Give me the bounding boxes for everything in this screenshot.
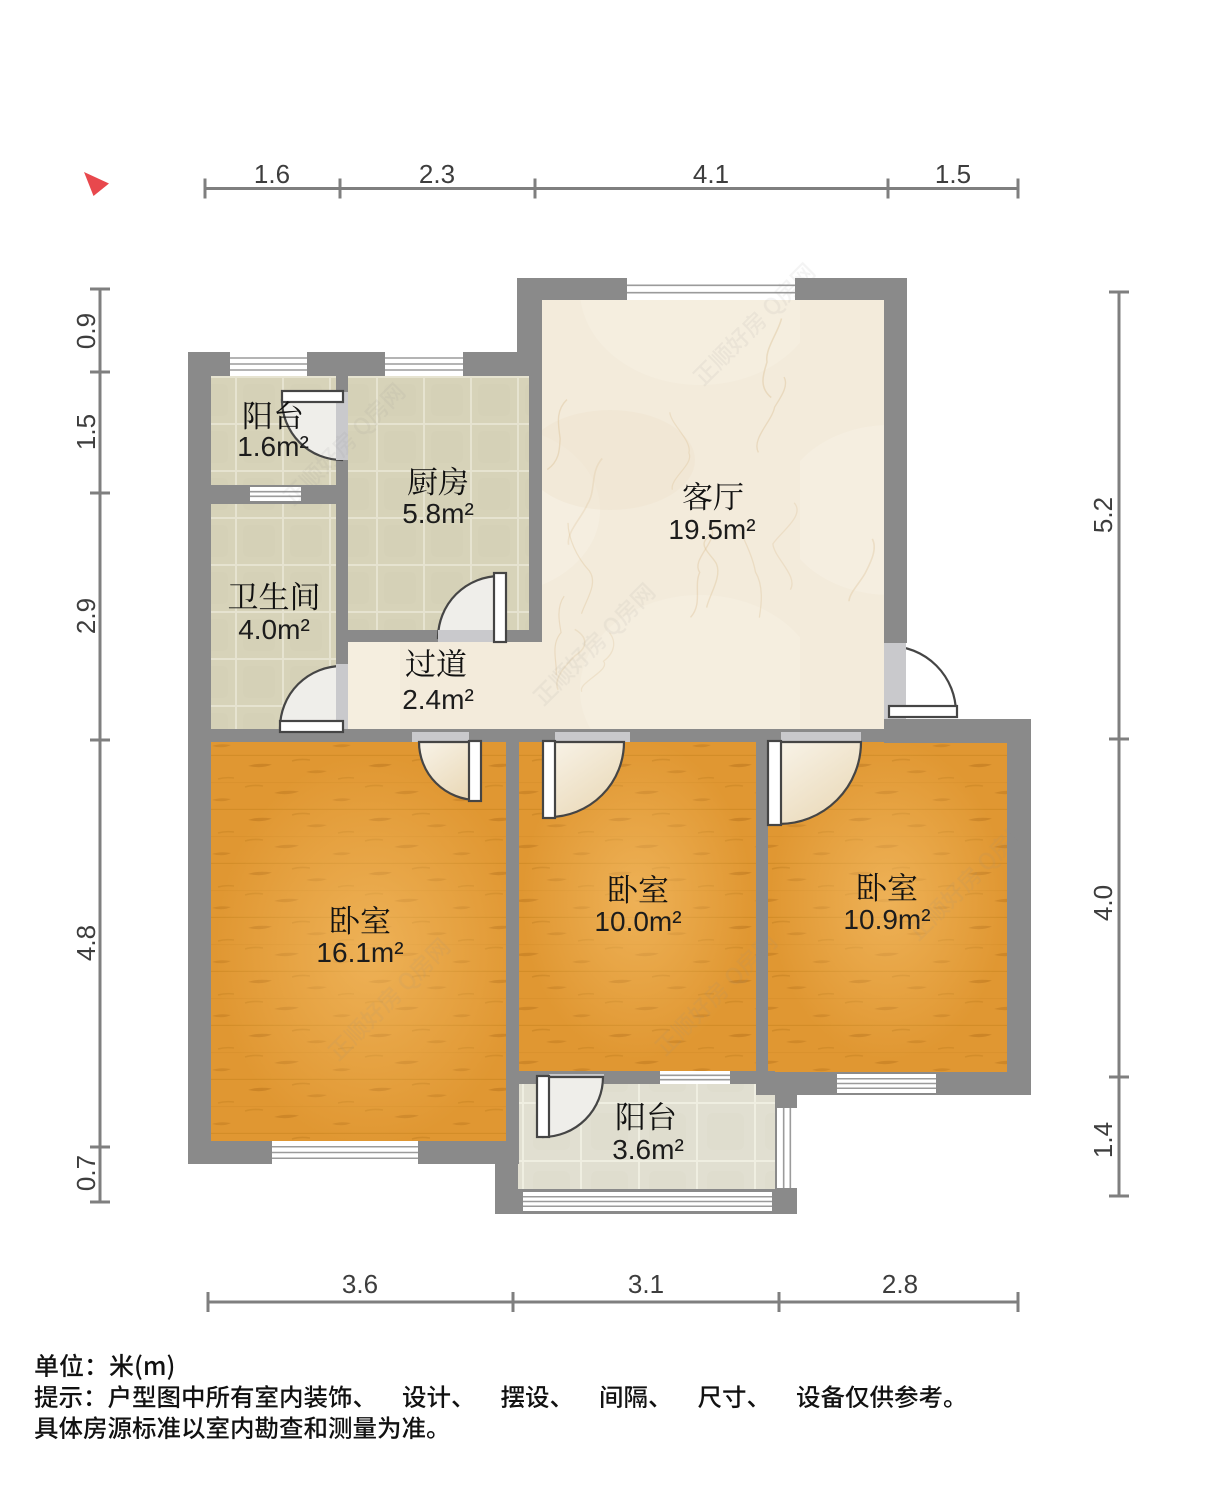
svg-text:4.1: 4.1 — [693, 159, 729, 189]
svg-text:5.2: 5.2 — [1088, 497, 1118, 533]
svg-text:2.9: 2.9 — [71, 598, 101, 634]
svg-text:1.6: 1.6 — [254, 159, 290, 189]
svg-text:0.7: 0.7 — [71, 1155, 101, 1191]
svg-text:5.8m²: 5.8m² — [402, 498, 474, 529]
svg-text:4.8: 4.8 — [71, 925, 101, 961]
svg-text:4.0m²: 4.0m² — [238, 614, 310, 645]
svg-text:3.6m²: 3.6m² — [612, 1134, 684, 1165]
svg-text:2.3: 2.3 — [419, 159, 455, 189]
svg-text:3.6: 3.6 — [342, 1269, 378, 1299]
svg-text:1.4: 1.4 — [1088, 1122, 1118, 1158]
svg-text:16.1m²: 16.1m² — [316, 937, 403, 968]
svg-text:3.1: 3.1 — [628, 1269, 664, 1299]
svg-text:10.0m²: 10.0m² — [594, 906, 681, 937]
svg-text:19.5m²: 19.5m² — [668, 514, 755, 545]
svg-text:1.5: 1.5 — [71, 414, 101, 450]
svg-text:1.6m²: 1.6m² — [237, 431, 309, 462]
svg-text:1.5: 1.5 — [935, 159, 971, 189]
svg-text:2.4m²: 2.4m² — [402, 684, 474, 715]
svg-text:4.0: 4.0 — [1088, 885, 1118, 921]
svg-text:2.8: 2.8 — [882, 1269, 918, 1299]
svg-text:0.9: 0.9 — [71, 313, 101, 349]
